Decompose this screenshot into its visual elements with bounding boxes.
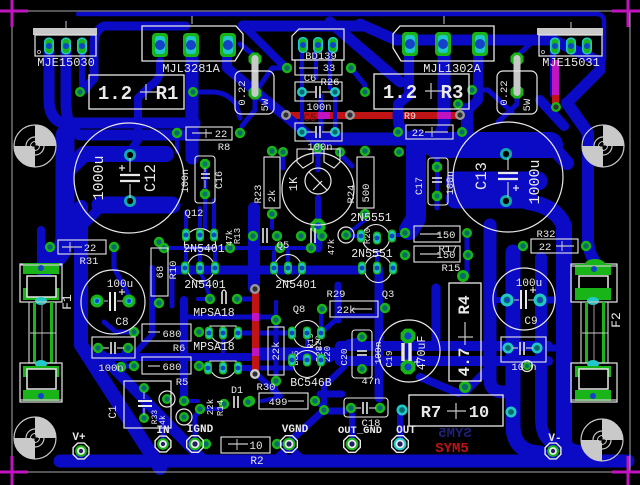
svg-text:1.2: 1.2	[98, 83, 132, 105]
svg-text:33: 33	[323, 63, 336, 75]
svg-text:Q3: Q3	[382, 289, 395, 301]
svg-text:0.22: 0.22	[237, 80, 249, 105]
svg-text:2N5401: 2N5401	[275, 279, 317, 292]
svg-text:F2: F2	[609, 312, 624, 328]
svg-text:R13: R13	[233, 228, 243, 244]
svg-text:5W: 5W	[522, 98, 534, 111]
svg-text:C19: C19	[384, 350, 395, 367]
svg-text:Q5: Q5	[277, 240, 290, 252]
svg-text:22: 22	[84, 243, 97, 255]
svg-text:R4: R4	[456, 295, 474, 315]
svg-text:R2: R2	[250, 456, 263, 468]
svg-text:F1: F1	[60, 294, 75, 310]
svg-text:22k: 22k	[206, 399, 216, 415]
svg-text:IN: IN	[156, 425, 169, 437]
svg-text:R32: R32	[537, 229, 556, 241]
svg-text:499: 499	[269, 397, 288, 409]
svg-text:2N5401: 2N5401	[184, 279, 226, 292]
svg-text:R26: R26	[321, 77, 340, 89]
svg-text:R31: R31	[80, 256, 99, 268]
svg-text:BC546B: BC546B	[290, 377, 332, 390]
svg-text:100n: 100n	[307, 142, 332, 154]
svg-text:C5: C5	[303, 113, 317, 125]
svg-text:100n: 100n	[98, 363, 123, 375]
svg-text:680: 680	[163, 362, 182, 374]
svg-text:1K: 1K	[287, 176, 301, 191]
svg-text:MJE15030: MJE15030	[37, 56, 95, 70]
svg-text:1.2: 1.2	[383, 82, 417, 104]
svg-text:R15: R15	[442, 263, 461, 275]
svg-text:1000u: 1000u	[527, 159, 544, 204]
svg-text:R1: R1	[156, 83, 179, 105]
svg-text:C12: C12	[142, 164, 160, 192]
svg-text:68: 68	[155, 266, 167, 279]
svg-text:MJE15031: MJE15031	[542, 56, 600, 70]
svg-text:2N5401: 2N5401	[183, 243, 225, 256]
svg-text:470uF: 470uF	[416, 336, 429, 371]
svg-text:D1: D1	[231, 386, 243, 397]
svg-text:R6: R6	[173, 343, 186, 355]
svg-text:Q12: Q12	[185, 208, 204, 220]
svg-text:150: 150	[437, 230, 456, 242]
svg-text:22: 22	[539, 242, 552, 254]
svg-text:MPSA18: MPSA18	[193, 341, 235, 354]
svg-text:100u: 100u	[516, 278, 542, 290]
svg-text:4k: 4k	[159, 415, 168, 425]
svg-text:R3: R3	[441, 82, 464, 104]
svg-text:22: 22	[412, 128, 425, 140]
svg-text:C20: C20	[339, 348, 350, 365]
svg-text:C16: C16	[215, 171, 226, 189]
svg-text:R10: R10	[168, 261, 180, 280]
svg-text:MPSA18: MPSA18	[193, 307, 235, 320]
svg-text:C8: C8	[115, 317, 128, 329]
svg-text:2N5551: 2N5551	[351, 248, 393, 261]
svg-text:1000u: 1000u	[91, 155, 108, 200]
svg-text:2N5551: 2N5551	[350, 212, 392, 225]
svg-text:C13: C13	[473, 162, 491, 190]
svg-text:500: 500	[361, 184, 373, 203]
svg-text:22: 22	[215, 129, 228, 141]
svg-text:C9: C9	[524, 316, 537, 328]
svg-text:R23: R23	[253, 185, 265, 204]
svg-text:0.22: 0.22	[499, 80, 511, 105]
svg-text:Q8: Q8	[293, 304, 306, 316]
svg-text:22k: 22k	[337, 305, 356, 317]
svg-text:C1: C1	[108, 405, 120, 419]
svg-text:10: 10	[249, 441, 262, 453]
svg-text:V+: V+	[72, 432, 86, 444]
svg-text:680: 680	[163, 329, 182, 341]
svg-text:47k: 47k	[327, 239, 337, 255]
svg-text:R30: R30	[257, 382, 276, 394]
svg-text:2k: 2k	[267, 190, 279, 203]
svg-text:5W: 5W	[260, 98, 272, 111]
svg-text:22k: 22k	[271, 342, 283, 361]
svg-text:R29: R29	[327, 289, 346, 301]
svg-text:C17: C17	[415, 177, 426, 195]
svg-text:IGND: IGND	[187, 424, 214, 436]
svg-text:R7: R7	[421, 404, 441, 423]
svg-text:R14: R14	[216, 400, 226, 416]
svg-text:MJL3281A: MJL3281A	[162, 62, 220, 76]
svg-text:4.7: 4.7	[456, 348, 474, 377]
svg-text:100u: 100u	[107, 279, 133, 291]
svg-text:SYM5: SYM5	[435, 441, 469, 457]
svg-text:OUT_GND: OUT_GND	[338, 425, 382, 437]
svg-text:C6: C6	[304, 73, 317, 85]
svg-text:R8: R8	[218, 142, 231, 154]
svg-text:VGND: VGND	[282, 424, 309, 436]
svg-text:100n: 100n	[373, 342, 384, 365]
svg-text:BD139: BD139	[305, 51, 337, 63]
svg-text:SYM5: SYM5	[438, 426, 472, 442]
svg-text:R5: R5	[176, 377, 189, 389]
svg-text:47n: 47n	[362, 376, 381, 388]
svg-text:10: 10	[469, 404, 489, 423]
svg-text:150: 150	[437, 250, 456, 262]
svg-text:R9: R9	[404, 112, 416, 123]
